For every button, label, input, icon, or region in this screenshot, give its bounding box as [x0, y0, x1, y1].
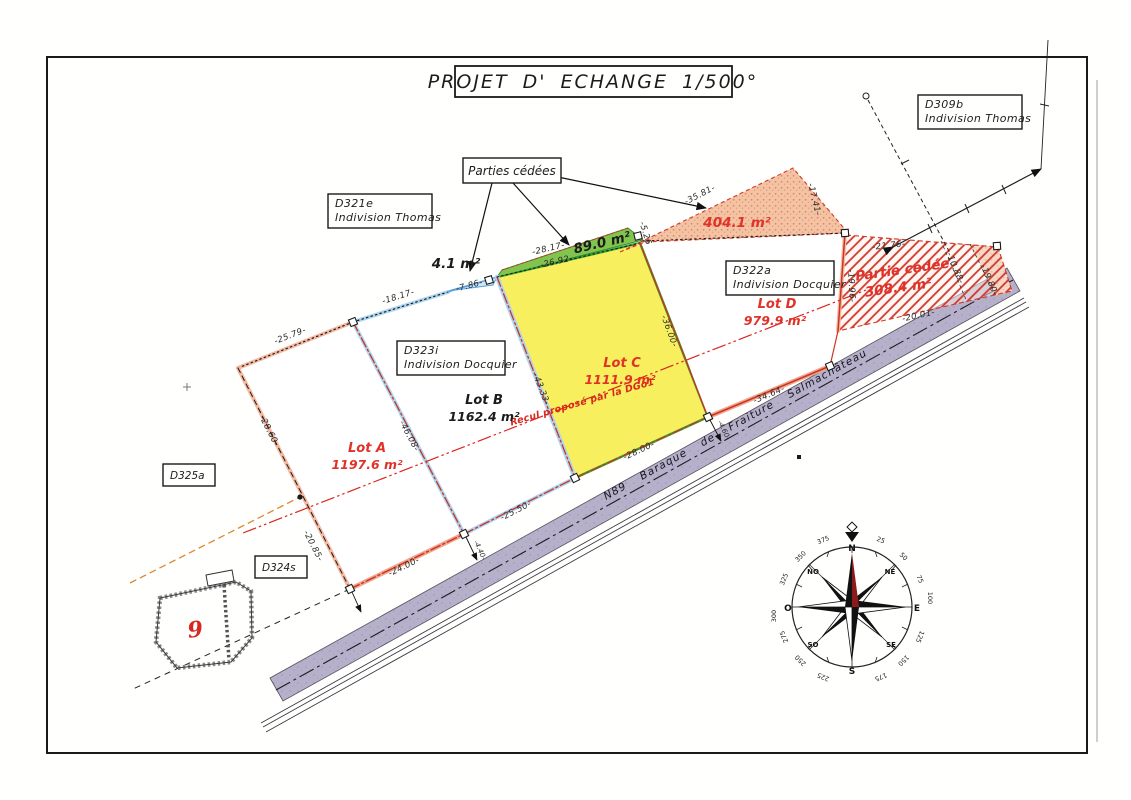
lot-b-area: 1162.4 m² [448, 409, 520, 424]
parcel-id: D321e [335, 197, 373, 210]
building-number: 9 [186, 616, 204, 643]
title-box: PROJET D' ECHANGE 1/500° [428, 66, 759, 97]
compass-so: SO [808, 641, 819, 649]
parcel-box-d321e: D321e Indivision Thomas [328, 194, 441, 228]
lot-c-area: 1111.9 m² [584, 372, 656, 387]
lot-d-area: 979.9 m² [744, 313, 807, 328]
plan-page: N89 Baraque de Fraiture Salmachâteau [0, 0, 1131, 800]
plan-canvas: N89 Baraque de Fraiture Salmachâteau [0, 0, 1131, 800]
parcel-box-d324s: D324s [255, 556, 307, 578]
compass-e: E [914, 604, 920, 614]
parcel-id: D322a [733, 264, 771, 277]
callout-label: Parties cédées [468, 164, 556, 178]
lot-b-name: Lot B [465, 393, 503, 408]
parcel-box-d323i: D323i Indivision Docquier [397, 341, 518, 375]
dim-d-right: -19.96- [845, 269, 857, 303]
ceded-sliver-area: 4.1 m² [431, 256, 481, 272]
parcel-owner: Indivision Docquier [404, 358, 518, 371]
parcel-id: D309b [925, 98, 963, 111]
lot-c-name: Lot C [603, 356, 641, 371]
parcel-owner: Indivision Thomas [335, 211, 441, 224]
parcel-box-d309b: D309b Indivision Thomas [918, 95, 1031, 129]
parcel-box-d322a: D322a Indivision Docquier [726, 261, 847, 295]
compass-ne: NE [885, 568, 896, 576]
lot-a-area: 1197.6 m² [331, 457, 403, 472]
compass-tick-label: 300 [770, 610, 778, 622]
lot-d-name: Lot D [758, 297, 797, 312]
parcel-id: D324s [262, 562, 296, 574]
parcel-id: D323i [404, 344, 439, 357]
compass-se: SE [886, 641, 896, 649]
compass-o: O [784, 604, 792, 614]
parcel-id: D325a [170, 470, 205, 482]
compass-n: N [848, 544, 856, 554]
lot-a-name: Lot A [348, 441, 386, 456]
plan-title: PROJET D' ECHANGE 1/500° [428, 71, 759, 93]
parties-cedees-callout: Parties cédées [463, 158, 561, 183]
compass-s: S [849, 667, 855, 677]
parcel-owner: Indivision Thomas [925, 112, 1031, 125]
parcel-owner: Indivision Docquier [733, 278, 847, 291]
compass-tick-label: 100 [926, 592, 934, 604]
parcel-box-d325a: D325a [163, 464, 215, 486]
ceded-north-area: 404.1 m² [702, 215, 770, 231]
compass-no: NO [807, 568, 819, 576]
